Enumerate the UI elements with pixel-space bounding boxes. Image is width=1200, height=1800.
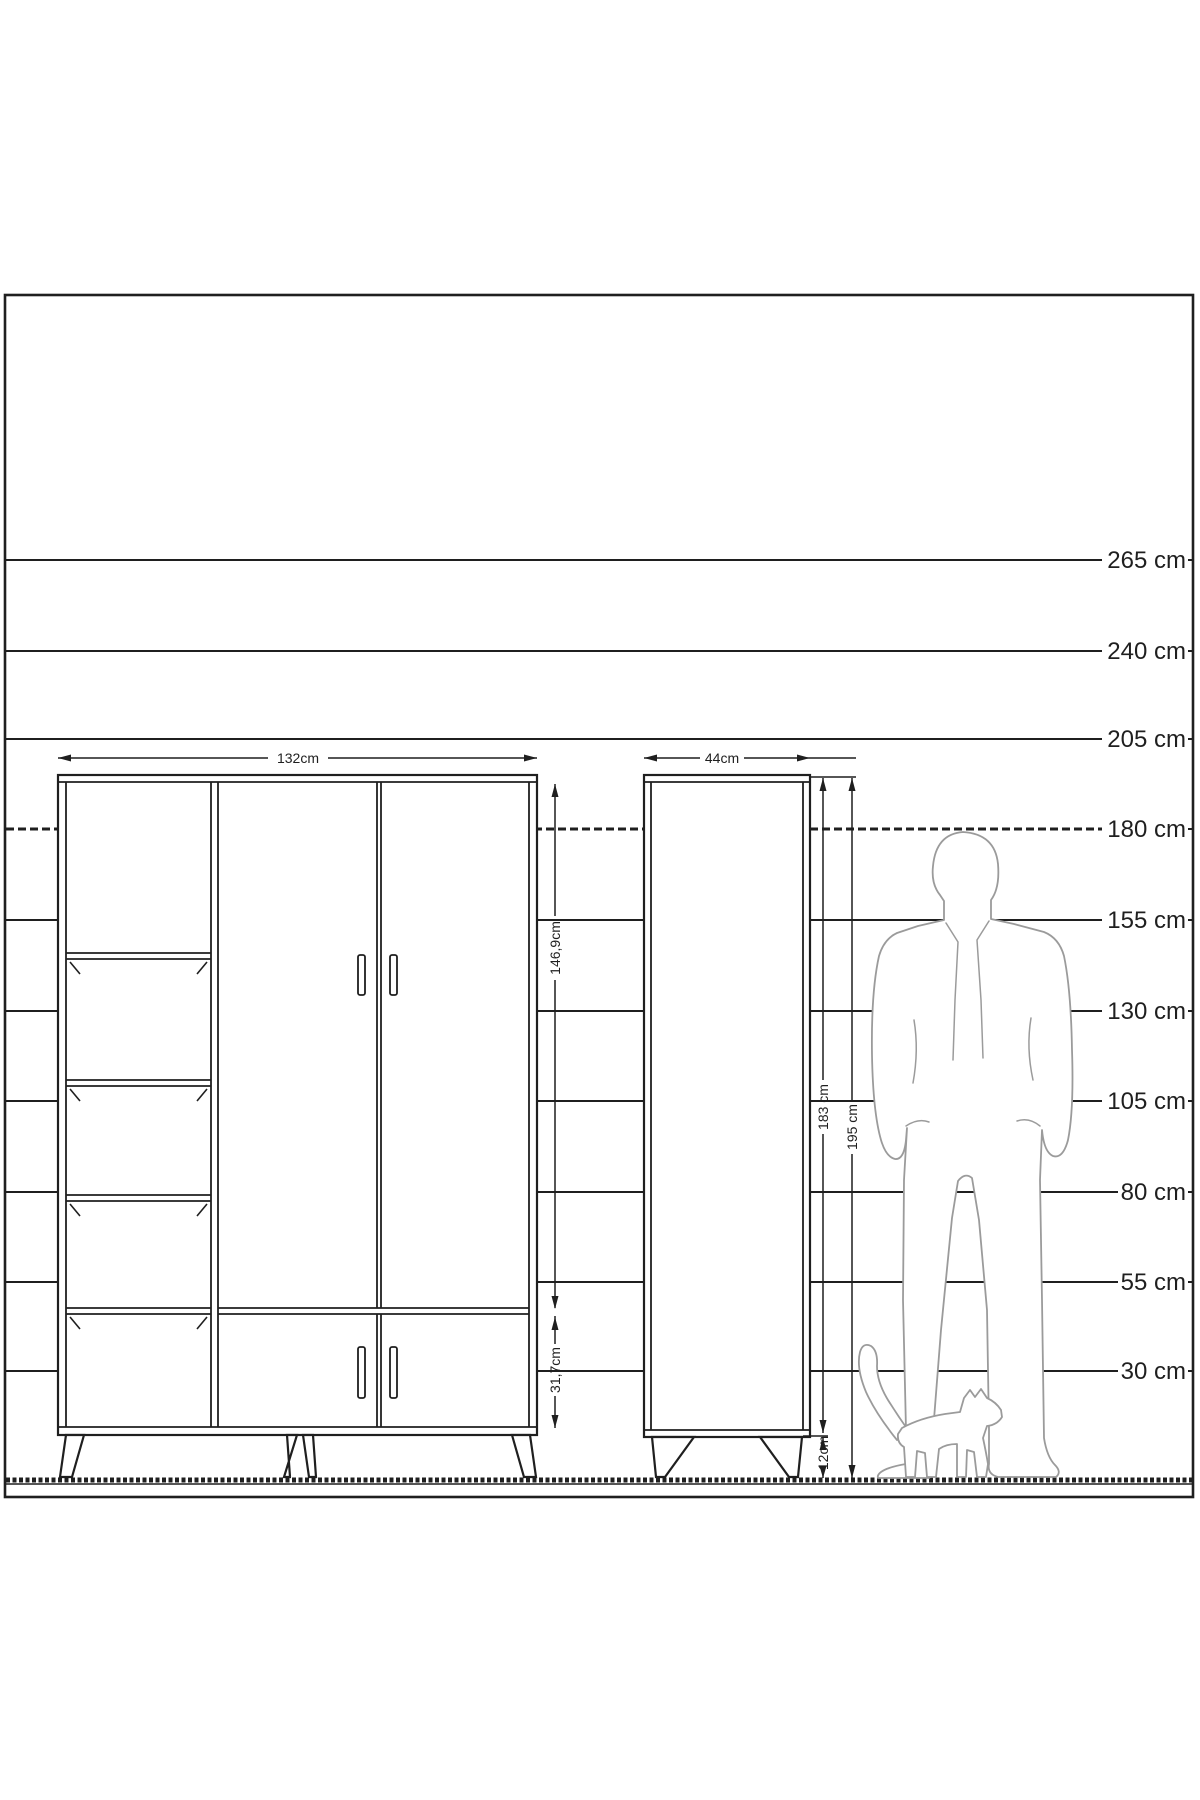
- furniture-dimension-diagram: 265 cm 240 cm 205 cm 180 cm 155 cm: [0, 0, 1200, 1800]
- floor-line: [6, 1480, 1192, 1484]
- ruler-label: 130 cm: [1107, 998, 1186, 1025]
- side-body: [644, 775, 810, 1437]
- ruler-label: 30 cm: [1121, 1358, 1186, 1385]
- side-total-height-label: 195 cm: [844, 1104, 860, 1150]
- wardrobe-side-view: [644, 775, 810, 1477]
- side-width-label: 44cm: [705, 750, 739, 766]
- front-drawer-height-label: 31,7cm: [547, 1347, 563, 1393]
- ruler-label: 55 cm: [1121, 1269, 1186, 1296]
- wardrobe-body: [58, 775, 537, 1435]
- ruler-label: 240 cm: [1107, 638, 1186, 665]
- ruler-label: 105 cm: [1107, 1088, 1186, 1115]
- wardrobe-front-view: [58, 775, 537, 1477]
- front-width-label: 132cm: [277, 750, 319, 766]
- ruler-label: 265 cm: [1107, 547, 1186, 574]
- ruler-label: 155 cm: [1107, 907, 1186, 934]
- ruler-label: 80 cm: [1121, 1179, 1186, 1206]
- side-leg-height-label: 12cm: [815, 1436, 831, 1470]
- side-body-height-label: 183 cm: [815, 1084, 831, 1130]
- front-door-height-label: 146,9cm: [547, 921, 563, 975]
- ruler-label: 180 cm: [1107, 816, 1186, 843]
- ruler-label: 205 cm: [1107, 726, 1186, 753]
